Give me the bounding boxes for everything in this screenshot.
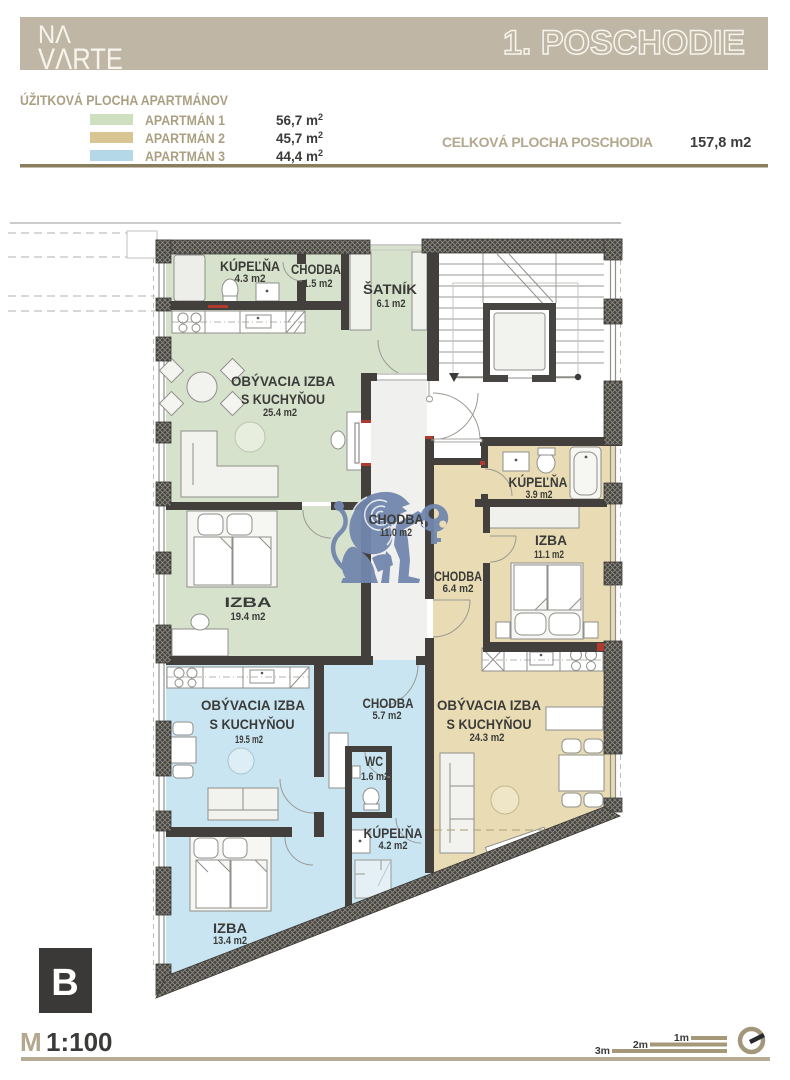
svg-text:6.4 m2: 6.4 m2 — [443, 583, 474, 595]
svg-text:44,4 m2: 44,4 m2 — [276, 148, 323, 164]
svg-text:KÚPEĽŇA: KÚPEĽŇA — [364, 824, 423, 841]
svg-text:ŠATNÍK: ŠATNÍK — [363, 280, 417, 297]
svg-text:3.9 m2: 3.9 m2 — [526, 489, 553, 501]
svg-text:APARTMÁN 3: APARTMÁN 3 — [145, 149, 225, 164]
svg-text:IZBA: IZBA — [225, 594, 272, 610]
svg-text:OBÝVACIA IZBA: OBÝVACIA IZBA — [437, 696, 541, 713]
svg-text:CHODBA: CHODBA — [363, 695, 414, 711]
svg-text:CELKOVÁ PLOCHA POSCHODIA: CELKOVÁ PLOCHA POSCHODIA — [442, 134, 653, 150]
svg-text:19.4 m2: 19.4 m2 — [231, 611, 266, 623]
svg-text:ÚŽITKOVÁ PLOCHA APARTMÁNOV: ÚŽITKOVÁ PLOCHA APARTMÁNOV — [20, 93, 228, 108]
svg-text:13.4 m2: 13.4 m2 — [213, 935, 247, 947]
svg-text:1.5 m2: 1.5 m2 — [304, 278, 333, 290]
svg-text:1. POSCHODIE: 1. POSCHODIE — [503, 24, 745, 62]
svg-text:11.1 m2: 11.1 m2 — [534, 549, 564, 561]
svg-text:5.7 m2: 5.7 m2 — [373, 710, 402, 722]
svg-text:11.0 m2: 11.0 m2 — [380, 527, 412, 539]
svg-text:M: M — [20, 1027, 42, 1057]
svg-text:S KUCHYŇOU: S KUCHYŇOU — [447, 715, 532, 732]
svg-text:24.3 m2: 24.3 m2 — [470, 732, 505, 744]
svg-text:3m: 3m — [595, 1045, 610, 1057]
svg-text:CHODBA: CHODBA — [369, 511, 424, 527]
svg-text:KÚPEĽŇA: KÚPEĽŇA — [220, 257, 280, 274]
svg-text:56,7 m2: 56,7 m2 — [276, 112, 323, 128]
svg-text:IZBA: IZBA — [213, 920, 247, 936]
svg-text:OBÝVACIA IZBA: OBÝVACIA IZBA — [231, 372, 335, 389]
svg-text:1.6 m2: 1.6 m2 — [361, 771, 389, 783]
svg-text:1:100: 1:100 — [46, 1027, 113, 1057]
svg-text:45,7 m2: 45,7 m2 — [276, 130, 323, 146]
svg-text:APARTMÁN 1: APARTMÁN 1 — [145, 113, 225, 128]
svg-text:OBÝVACIA IZBA: OBÝVACIA IZBA — [201, 696, 305, 713]
svg-text:25.4 m2: 25.4 m2 — [263, 407, 297, 419]
svg-text:CHODBA: CHODBA — [291, 261, 341, 277]
svg-text:CHODBA: CHODBA — [434, 568, 482, 584]
svg-text:KÚPEĽŇA: KÚPEĽŇA — [509, 473, 568, 490]
svg-text:VΛRTE: VΛRTE — [38, 43, 123, 76]
svg-text:WC: WC — [365, 753, 383, 769]
svg-text:4.3 m2: 4.3 m2 — [235, 273, 266, 285]
svg-text:157,8 m2: 157,8 m2 — [690, 135, 751, 151]
svg-text:APARTMÁN 2: APARTMÁN 2 — [145, 131, 225, 146]
svg-text:B: B — [51, 962, 78, 1004]
svg-text:S KUCHYŇOU: S KUCHYŇOU — [210, 715, 295, 732]
svg-text:4.2 m2: 4.2 m2 — [379, 840, 408, 852]
svg-text:IZBA: IZBA — [535, 532, 567, 548]
svg-text:19.5 m2: 19.5 m2 — [235, 734, 263, 746]
svg-text:S KUCHYŇOU: S KUCHYŇOU — [241, 390, 325, 407]
svg-text:6.1 m2: 6.1 m2 — [377, 298, 406, 310]
svg-text:1m: 1m — [674, 1032, 689, 1044]
